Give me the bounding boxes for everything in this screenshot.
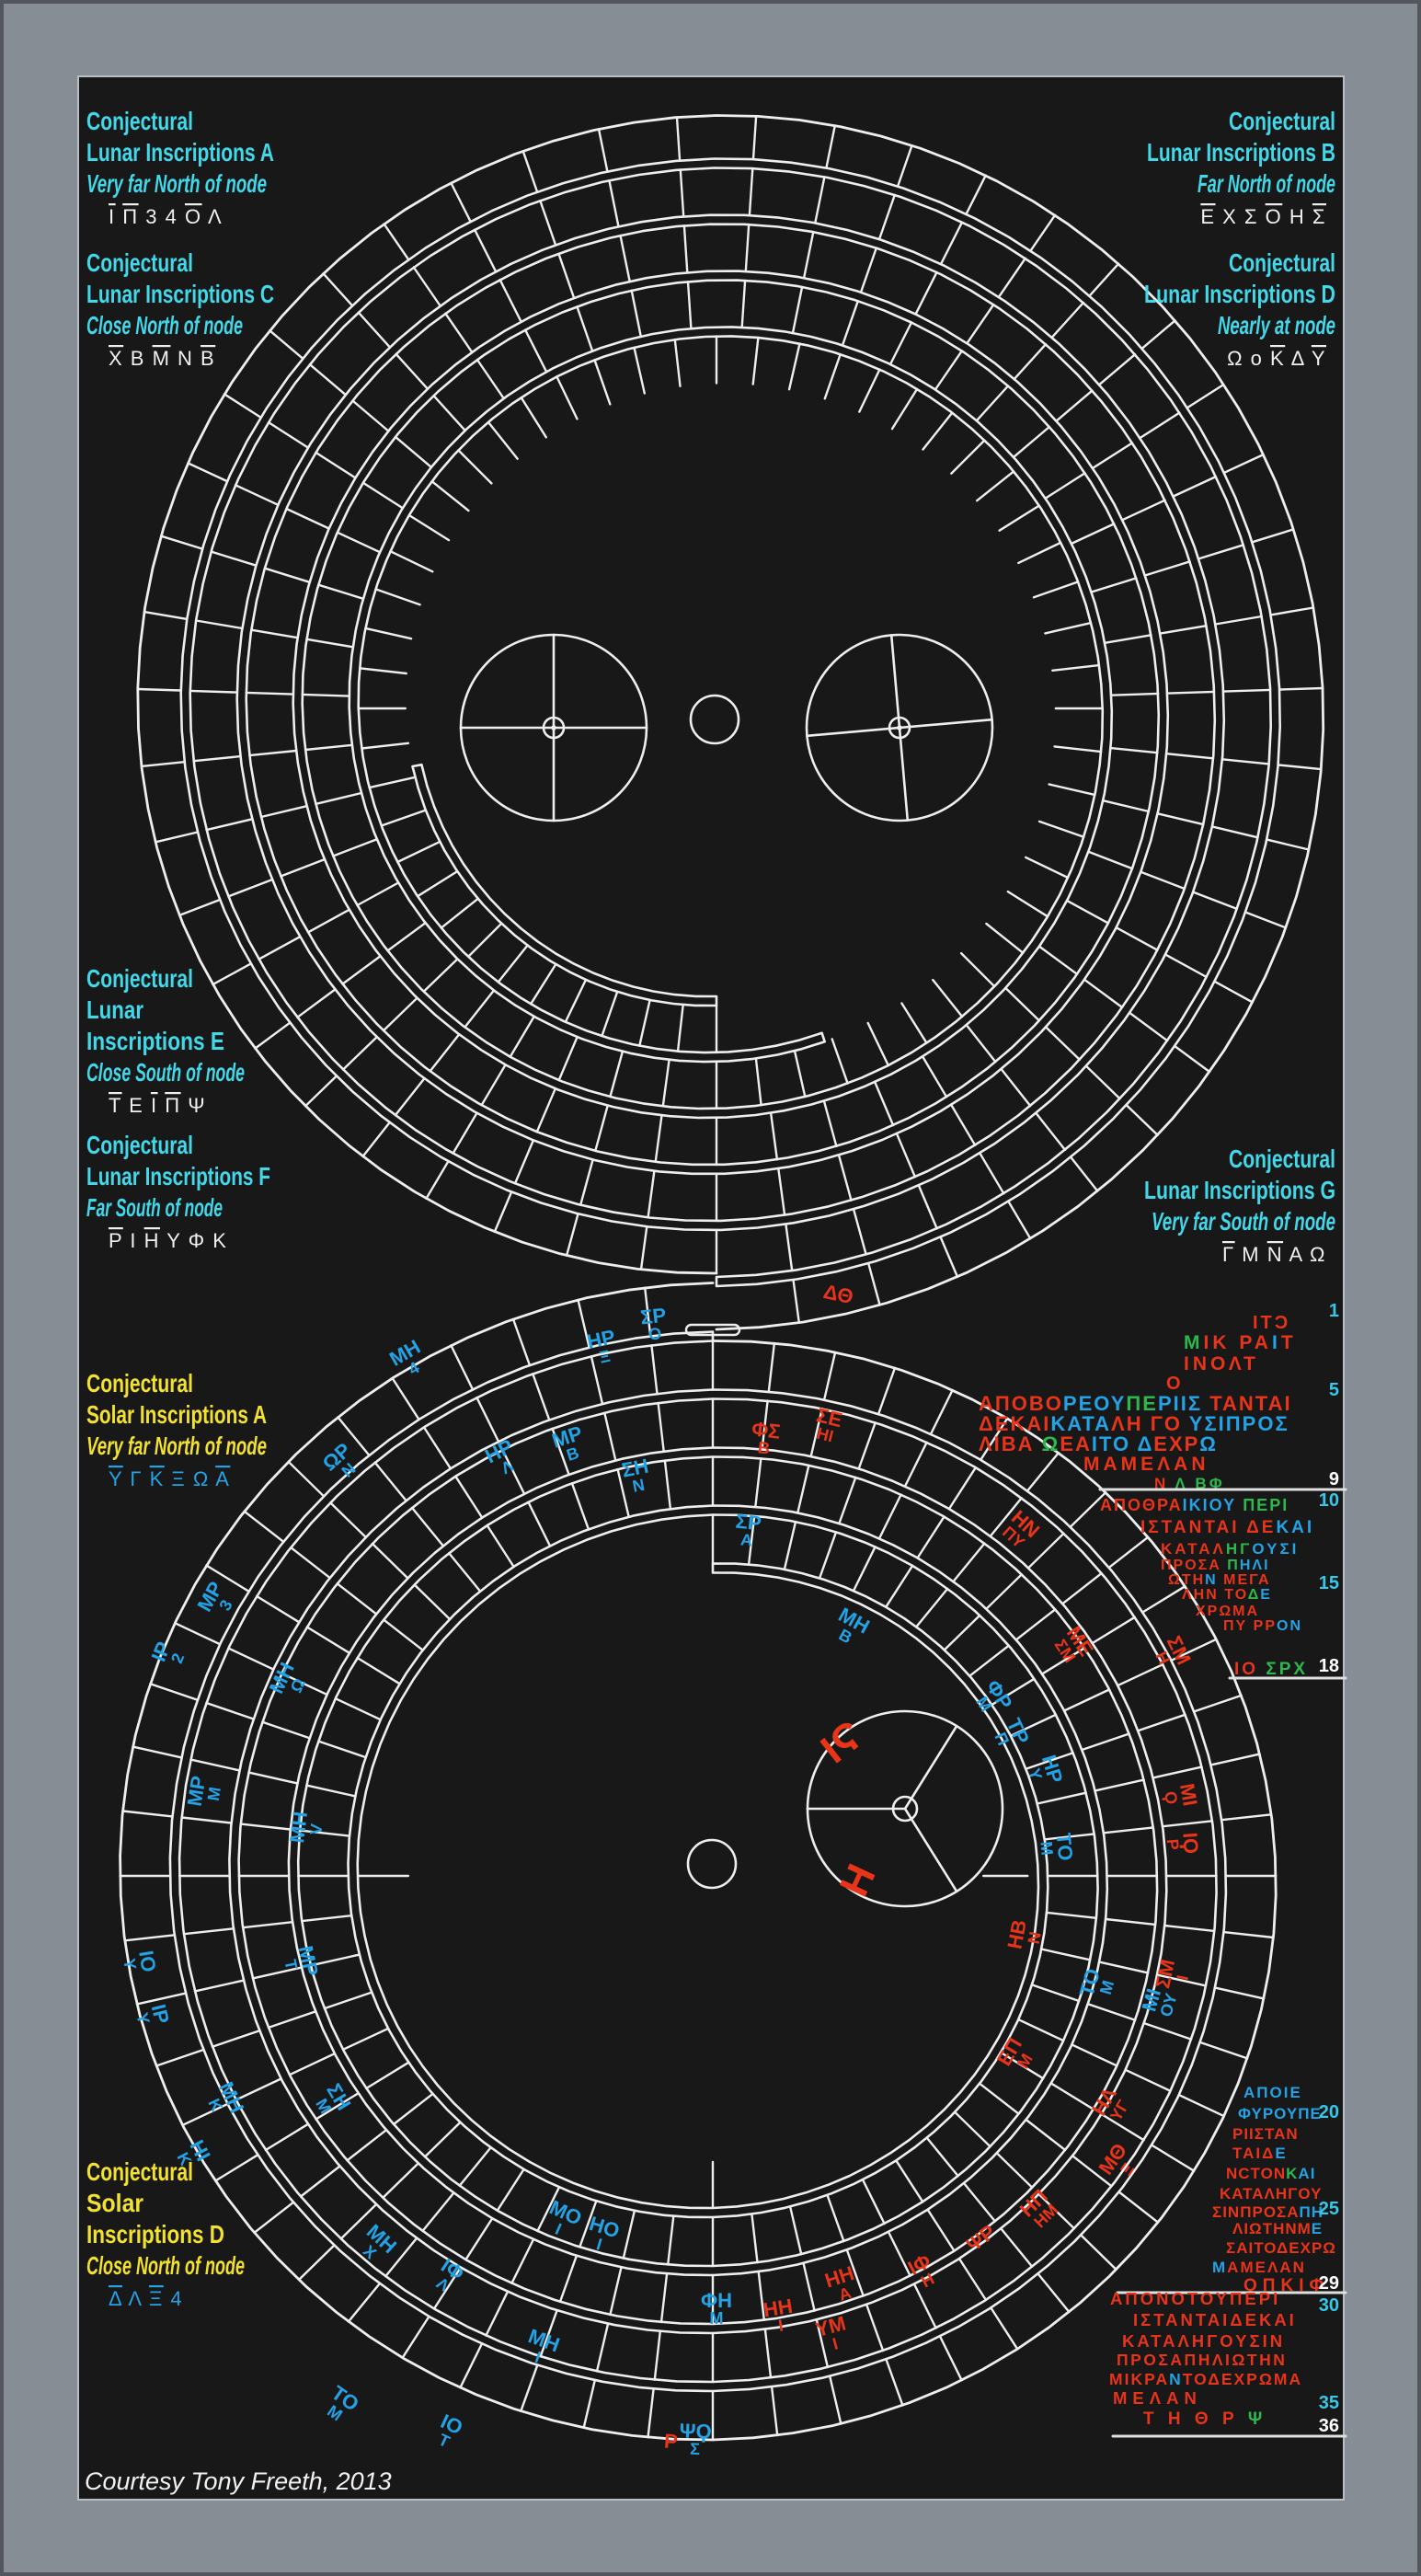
svg-text:Ο: Ο xyxy=(1166,1374,1185,1394)
svg-text:25: 25 xyxy=(1319,2199,1339,2219)
svg-text:Conjectural: Conjectural xyxy=(86,107,193,135)
svg-text:ΛΙΒΑ ΩΕΑΙΤΟ ΔΕΧΡΩ: ΛΙΒΑ ΩΕΑΙΤΟ ΔΕΧΡΩ xyxy=(979,1432,1218,1455)
svg-text:ΩΤΗΝ ΜΕΓΑ: ΩΤΗΝ ΜΕΓΑ xyxy=(1168,1572,1271,1588)
svg-text:ΦΥΡΟΥΠΕ: ΦΥΡΟΥΠΕ xyxy=(1238,2105,1322,2122)
svg-text:Τ Η Θ Ρ Ψ: Τ Η Θ Ρ Ψ xyxy=(1143,2409,1266,2429)
svg-text:1: 1 xyxy=(1329,1301,1339,1321)
svg-text:Conjectural: Conjectural xyxy=(1229,107,1335,135)
svg-text:36: 36 xyxy=(1319,2416,1339,2436)
svg-text:Lunar: Lunar xyxy=(86,995,143,1024)
svg-text:Lunar Inscriptions F: Lunar Inscriptions F xyxy=(86,1162,270,1190)
svg-text:Close South of node: Close South of node xyxy=(86,1058,245,1087)
svg-text:ΑΠΟΙΕ: ΑΠΟΙΕ xyxy=(1243,2084,1302,2101)
svg-text:ΜΙΚ ΡΑΙΤ: ΜΙΚ ΡΑΙΤ xyxy=(1184,1332,1297,1353)
svg-text:Τ Ε Ι Π Ψ: Τ Ε Ι Π Ψ xyxy=(109,1094,206,1117)
svg-text:ΤΑΙΔΕ: ΤΑΙΔΕ xyxy=(1232,2145,1288,2162)
svg-text:Solar Inscriptions A: Solar Inscriptions A xyxy=(86,1400,267,1429)
svg-text:ΜΕΛΑΝ: ΜΕΛΑΝ xyxy=(1113,2388,1202,2408)
svg-text:ΧΡΩΜΑ: ΧΡΩΜΑ xyxy=(1196,1604,1259,1619)
svg-text:ΜΑΜΕΛΑΝ: ΜΑΜΕΛΑΝ xyxy=(1212,2259,1306,2276)
svg-text:Far North of node: Far North of node xyxy=(1198,169,1335,198)
svg-text:Ι Π 3 4 Ο Λ: Ι Π 3 4 Ο Λ xyxy=(109,205,223,228)
svg-text:ΜΑΜΕΛΑΝ: ΜΑΜΕΛΑΝ xyxy=(1083,1454,1209,1475)
svg-text:ΛΙΩΤΗΝΜΕ: ΛΙΩΤΗΝΜΕ xyxy=(1232,2220,1323,2237)
svg-text:Inscriptions E: Inscriptions E xyxy=(86,1027,224,1055)
svg-text:Lunar Inscriptions D: Lunar Inscriptions D xyxy=(1144,280,1335,308)
svg-text:30: 30 xyxy=(1319,2295,1339,2316)
svg-text:ΙΣΤΑΝΤΑΙΔΕΚΑΙ: ΙΣΤΑΝΤΑΙΔΕΚΑΙ xyxy=(1133,2310,1297,2329)
svg-text:15: 15 xyxy=(1319,1573,1339,1593)
svg-text:ΚΑΤΑΛΗΓΟΥΣΙ: ΚΑΤΑΛΗΓΟΥΣΙ xyxy=(1161,1540,1299,1558)
svg-text:ΠΡΟΣΑΠΗΛΙΩΤΗΝ: ΠΡΟΣΑΠΗΛΙΩΤΗΝ xyxy=(1117,2351,1287,2369)
svg-text:ΙΣΤΑΝΤΑΙ ΔΕΚΑΙ: ΙΣΤΑΝΤΑΙ ΔΕΚΑΙ xyxy=(1140,1518,1314,1537)
svg-text:ΙΝΟΛΤ: ΙΝΟΛΤ xyxy=(1184,1353,1259,1374)
svg-text:Conjectural: Conjectural xyxy=(86,1369,193,1397)
svg-text:29: 29 xyxy=(1319,2273,1339,2294)
svg-text:20: 20 xyxy=(1319,2102,1339,2122)
svg-text:Γ Μ Ν Α Ω: Γ Μ Ν Α Ω xyxy=(1222,1243,1326,1266)
svg-text:ΛΗΝ ΤΟΔΕ: ΛΗΝ ΤΟΔΕ xyxy=(1182,1587,1272,1603)
svg-text:Δ Λ Ξ 4: Δ Λ Ξ 4 xyxy=(109,2287,183,2310)
svg-text:Close North of node: Close North of node xyxy=(86,311,243,339)
svg-text:Χ Β Μ Ν Β: Χ Β Μ Ν Β xyxy=(109,347,215,370)
svg-text:ΚΑΤΑΛΗΓΟΥ: ΚΑΤΑΛΗΓΟΥ xyxy=(1220,2185,1322,2202)
svg-text:Solar: Solar xyxy=(86,2189,143,2217)
svg-text:ΣΑΙΤΟΔΕΧΡΩ: ΣΑΙΤΟΔΕΧΡΩ xyxy=(1226,2239,1336,2257)
svg-text:Lunar Inscriptions G: Lunar Inscriptions G xyxy=(1144,1176,1335,1204)
svg-text:Ε Χ Σ Ο Η Σ: Ε Χ Σ Ο Η Σ xyxy=(1200,205,1326,228)
svg-text:ΑΠΟΘΡΑΙΚΙΟΥ ΠΕΡΙ: ΑΠΟΘΡΑΙΚΙΟΥ ΠΕΡΙ xyxy=(1100,1496,1289,1514)
svg-text:Conjectural: Conjectural xyxy=(1229,248,1335,277)
svg-text:ΡΙΙΣΤΑΝ: ΡΙΙΣΤΑΝ xyxy=(1232,2125,1299,2143)
svg-text:18: 18 xyxy=(1319,1656,1339,1676)
svg-text:35: 35 xyxy=(1319,2393,1339,2413)
svg-text:9: 9 xyxy=(1329,1469,1339,1489)
svg-text:ΚΑΤΑΛΗΓΟΥΣΙΝ: ΚΑΤΑΛΗΓΟΥΣΙΝ xyxy=(1122,2331,1285,2351)
svg-text:Ρ Ι Η Υ Φ Κ: Ρ Ι Η Υ Φ Κ xyxy=(109,1229,227,1252)
svg-text:Very far North of node: Very far North of node xyxy=(86,169,267,198)
svg-text:ΙΟ ΣΡΧ: ΙΟ ΣΡΧ xyxy=(1234,1660,1308,1679)
svg-text:5: 5 xyxy=(1329,1380,1339,1400)
svg-text:Very far South of node: Very far South of node xyxy=(1152,1207,1335,1236)
svg-text:ΑΠΟΝΟΤΟΥΠΕΡΙ: ΑΠΟΝΟΤΟΥΠΕΡΙ xyxy=(1110,2289,1280,2308)
svg-text:ΝCΤΟΝΚΑΙ: ΝCΤΟΝΚΑΙ xyxy=(1226,2165,1315,2182)
svg-text:Υ Γ Κ Ξ Ω Α: Υ Γ Κ Ξ Ω Α xyxy=(109,1467,230,1490)
svg-text:Close North of node: Close North of node xyxy=(86,2251,245,2280)
svg-text:Conjectural: Conjectural xyxy=(86,1131,193,1159)
svg-text:ΙΤϽ: ΙΤϽ xyxy=(1253,1313,1290,1333)
svg-text:Ω ο Κ Δ Υ: Ω ο Κ Δ Υ xyxy=(1227,347,1326,370)
svg-text:ΠΡΟΣΑ ΠΗΛΙ: ΠΡΟΣΑ ΠΗΛΙ xyxy=(1161,1558,1270,1573)
svg-text:Conjectural: Conjectural xyxy=(86,2157,193,2186)
svg-text:Courtesy Tony Freeth, 2013: Courtesy Tony Freeth, 2013 xyxy=(85,2467,392,2495)
svg-text:ΜΙΚΡΑΝΤΟΔΕΧΡΩΜΑ: ΜΙΚΡΑΝΤΟΔΕΧΡΩΜΑ xyxy=(1109,2370,1302,2388)
svg-text:Lunar Inscriptions B: Lunar Inscriptions B xyxy=(1147,138,1335,167)
svg-text:Ρ: Ρ xyxy=(663,2430,678,2454)
svg-text:ΠΥ ΡΡΟΝ: ΠΥ ΡΡΟΝ xyxy=(1223,1618,1302,1634)
svg-text:Conjectural: Conjectural xyxy=(86,248,193,277)
svg-text:Conjectural: Conjectural xyxy=(86,964,193,993)
svg-text:Conjectural: Conjectural xyxy=(1229,1144,1335,1173)
svg-text:Lunar Inscriptions A: Lunar Inscriptions A xyxy=(86,138,274,167)
svg-text:Inscriptions D: Inscriptions D xyxy=(86,2220,224,2248)
svg-text:10: 10 xyxy=(1319,1490,1339,1511)
svg-text:Far South of node: Far South of node xyxy=(86,1193,223,1222)
svg-text:Very far North of node: Very far North of node xyxy=(86,1432,267,1460)
svg-text:Lunar Inscriptions C: Lunar Inscriptions C xyxy=(86,280,274,308)
svg-text:ΣΙΝΠΡΟΣΑΠΗ: ΣΙΝΠΡΟΣΑΠΗ xyxy=(1212,2203,1324,2221)
svg-text:Nearly at node: Nearly at node xyxy=(1218,311,1335,339)
